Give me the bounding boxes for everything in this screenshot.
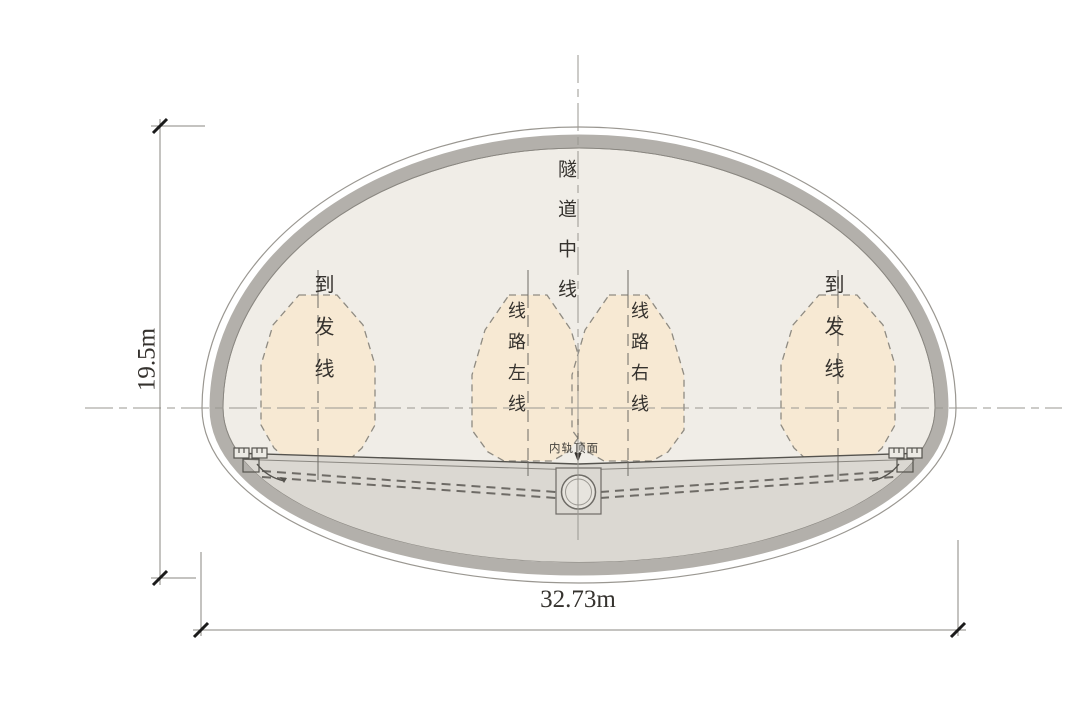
rail-top-surface-label: 内轨顶面 xyxy=(549,444,599,456)
height-dimension-label: 19.5m xyxy=(135,310,160,410)
route-left-label: 线路左线 xyxy=(507,301,525,425)
arrival-departure-left-label: 到发线 xyxy=(312,274,332,400)
arrival-departure-right-label: 到发线 xyxy=(822,274,842,400)
tunnel-cross-section-drawing: 隧道中线 到发线 线路左线 线路右线 到发线 内轨顶面 19.5m 32.73m xyxy=(0,0,1085,711)
width-dimension-label: 32.73m xyxy=(528,587,628,612)
tunnel-centerline-label: 隧道中线 xyxy=(556,159,575,319)
route-right-label: 线路右线 xyxy=(630,301,648,425)
